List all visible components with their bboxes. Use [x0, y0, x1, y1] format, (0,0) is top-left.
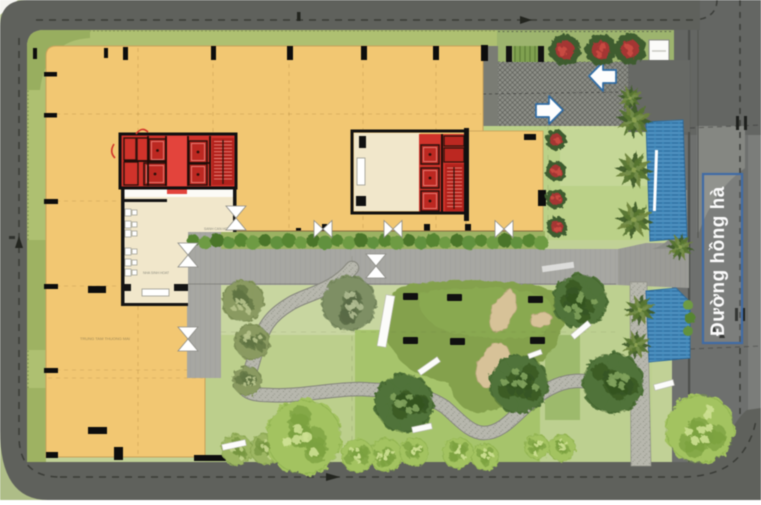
svg-text:TRUNG TAM THUONG MAI: TRUNG TAM THUONG MAI: [80, 336, 130, 341]
svg-text:Đường hồng hà: Đường hồng hà: [708, 186, 729, 336]
svg-text:SANH CAN HO: SANH CAN HO: [204, 227, 228, 231]
svg-text:NHA SINH HOAT: NHA SINH HOAT: [143, 271, 169, 275]
